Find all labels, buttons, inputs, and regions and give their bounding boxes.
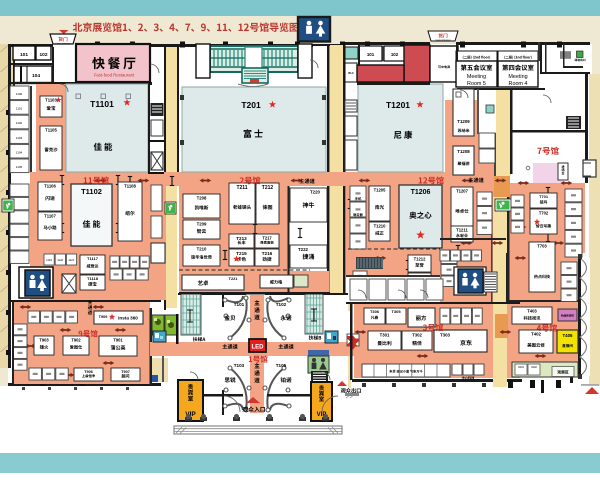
svg-text:T220: T220 — [310, 190, 321, 195]
svg-text:Cargo entrance: Cargo entrance — [435, 38, 451, 41]
svg-text:T102: T102 — [276, 302, 287, 307]
svg-text:T209: T209 — [197, 222, 207, 227]
svg-text:T217: T217 — [262, 235, 272, 240]
svg-text:T103: T103 — [234, 363, 245, 368]
svg-text:W.C: W.C — [348, 71, 354, 75]
svg-text:T1209: T1209 — [457, 119, 470, 124]
svg-text:101: 101 — [367, 52, 375, 57]
svg-text:T302: T302 — [412, 333, 422, 338]
svg-text:Meeting: Meeting — [467, 74, 486, 80]
svg-text:T1205: T1205 — [374, 187, 387, 192]
svg-text:T221: T221 — [229, 277, 238, 281]
svg-text:T211: T211 — [236, 185, 247, 191]
svg-text:Room 5: Room 5 — [467, 81, 486, 87]
svg-text:1102: 1102 — [16, 121, 23, 125]
svg-text:Meeting: Meeting — [508, 74, 527, 80]
svg-text:1104: 1104 — [16, 150, 23, 154]
svg-text:1105: 1105 — [16, 165, 23, 169]
svg-text:LED: LED — [252, 345, 265, 351]
svg-text:T303: T303 — [440, 333, 451, 338]
svg-text:T212: T212 — [262, 185, 274, 191]
svg-text:T1102: T1102 — [81, 187, 102, 196]
svg-text:T403: T403 — [527, 308, 537, 313]
svg-text:T201: T201 — [241, 100, 261, 110]
svg-text:1100: 1100 — [16, 92, 23, 96]
svg-text:T1117: T1117 — [87, 256, 99, 261]
svg-text:T1118: T1118 — [87, 276, 99, 281]
svg-text:104: 104 — [32, 73, 40, 79]
svg-text:T703: T703 — [537, 243, 547, 248]
svg-text:T1210: T1210 — [374, 223, 387, 228]
svg-text:T1208: T1208 — [457, 149, 470, 154]
svg-text:Cargo entrance: Cargo entrance — [55, 42, 71, 45]
svg-text:T1201: T1201 — [386, 100, 410, 110]
svg-text:1101: 1101 — [16, 107, 23, 111]
svg-text:Room 4: Room 4 — [509, 81, 528, 87]
svg-text:1121: 1121 — [68, 258, 74, 262]
svg-text:T305: T305 — [391, 309, 401, 314]
svg-text:T909: T909 — [99, 315, 108, 319]
svg-text:T1206: T1206 — [411, 189, 431, 196]
svg-text:T216: T216 — [262, 251, 273, 256]
svg-text:T1105: T1105 — [45, 127, 57, 132]
svg-text:T702: T702 — [539, 210, 549, 215]
svg-text:T101: T101 — [234, 302, 245, 307]
svg-text:T1212: T1212 — [414, 256, 427, 261]
svg-text:T1101: T1101 — [90, 99, 114, 109]
svg-text:T902: T902 — [71, 337, 81, 342]
svg-text:insta 360: insta 360 — [118, 316, 138, 321]
svg-text:T1106: T1106 — [44, 183, 56, 188]
svg-text:T1207: T1207 — [456, 188, 469, 193]
svg-text:T1108: T1108 — [124, 183, 136, 188]
svg-text:102: 102 — [391, 52, 399, 57]
svg-text:T210: T210 — [197, 247, 207, 252]
svg-text:T903: T903 — [39, 337, 49, 342]
svg-text:1103: 1103 — [16, 136, 23, 140]
svg-text:T215: T215 — [236, 251, 247, 256]
svg-text:T1107: T1107 — [44, 213, 56, 218]
svg-text:0401: 0401 — [518, 365, 524, 369]
svg-text:T405: T405 — [562, 333, 573, 338]
svg-text:T1103: T1103 — [45, 97, 57, 102]
svg-text:T901: T901 — [113, 337, 123, 342]
svg-text:T907: T907 — [121, 370, 130, 374]
svg-text:Fast-food Restaurant: Fast-food Restaurant — [94, 73, 135, 78]
svg-text:0402: 0402 — [531, 365, 537, 369]
svg-text:101: 101 — [20, 52, 28, 58]
svg-text:T213: T213 — [236, 236, 247, 241]
svg-text:T906: T906 — [84, 370, 93, 374]
svg-text:T208: T208 — [197, 196, 207, 201]
svg-text:T105: T105 — [276, 363, 287, 368]
svg-text:102: 102 — [39, 52, 47, 58]
svg-text:T306: T306 — [370, 309, 380, 314]
svg-text:T1211: T1211 — [456, 227, 468, 232]
svg-text:1120: 1120 — [57, 258, 63, 262]
svg-text:T301: T301 — [380, 333, 390, 338]
svg-text:T222: T222 — [298, 247, 309, 252]
svg-text:T402: T402 — [531, 332, 541, 337]
svg-text:1119: 1119 — [46, 258, 52, 262]
svg-text:T701: T701 — [539, 194, 549, 199]
